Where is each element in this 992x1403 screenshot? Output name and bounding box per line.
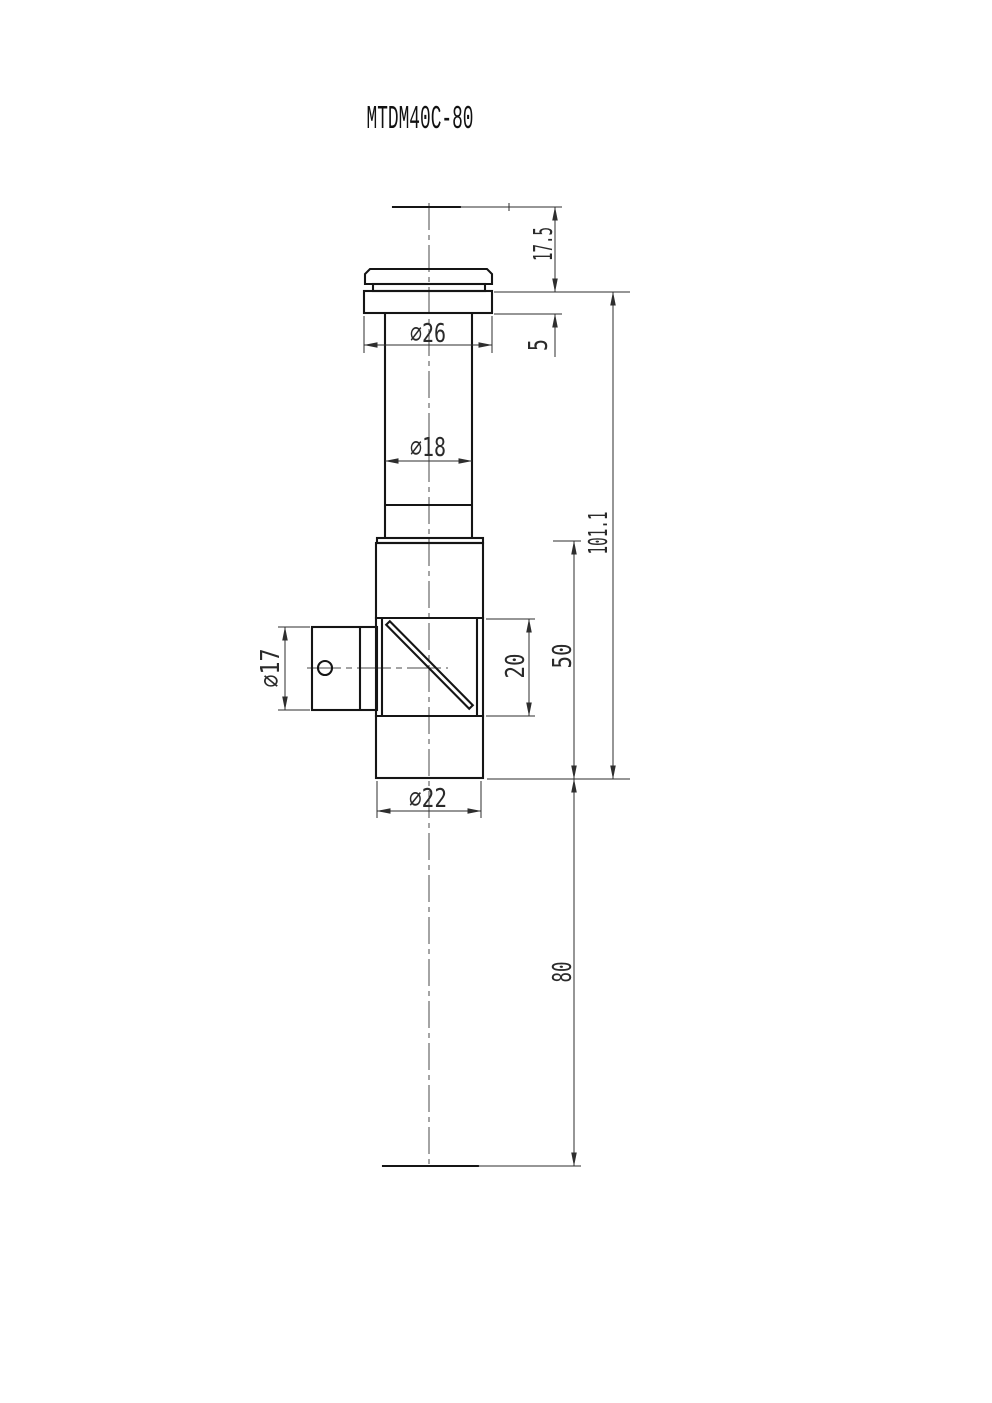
dim-flange-thickness: 5 (524, 314, 555, 357)
dim-label-body-diameter: ∅22 (409, 784, 447, 814)
dimensions: 17.5 5 ∅26 ∅18 101.1 50 (256, 207, 614, 1166)
dim-label-flange-thickness: 5 (524, 339, 554, 351)
extension-lines (278, 203, 630, 1166)
dim-window-size: 20 (501, 619, 531, 716)
dim-overall-length: 101.1 (584, 292, 614, 779)
dim-port-diameter: ∅17 (256, 627, 286, 710)
dim-label-top-offset: 17.5 (529, 227, 559, 261)
dim-label-window-size: 20 (501, 654, 531, 679)
dim-label-bottom-extension: 80 (548, 962, 578, 983)
dim-label-port-diameter: ∅17 (256, 649, 286, 688)
drawing-sheet: MTDM40C-80 (0, 0, 992, 1403)
dim-bottom-extension: 80 (548, 779, 578, 1166)
dim-label-flange-diameter: ∅26 (410, 319, 446, 349)
dim-label-tube-diameter: ∅18 (410, 433, 446, 463)
part-outline (312, 207, 492, 1166)
drawing-title: MTDM40C-80 (367, 101, 474, 138)
flange (364, 291, 492, 313)
dim-top-offset: 17.5 (529, 207, 559, 292)
dim-label-body-length: 50 (548, 644, 578, 669)
dim-body-diameter: ∅22 (377, 784, 481, 814)
dim-tube-diameter: ∅18 (385, 433, 472, 463)
technical-drawing: MTDM40C-80 (0, 0, 992, 1403)
dim-body-length: 50 (548, 541, 578, 779)
dim-label-overall-length: 101.1 (584, 512, 614, 555)
